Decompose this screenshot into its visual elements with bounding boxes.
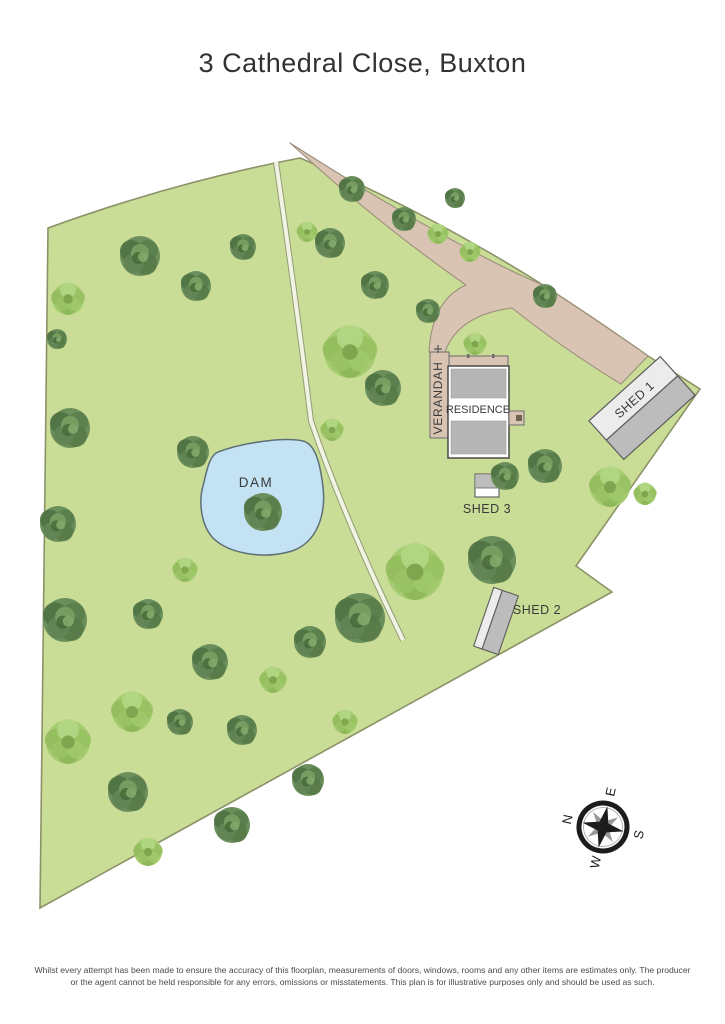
shed-2-label: SHED 2 (513, 603, 561, 617)
tree (633, 482, 656, 505)
tree (244, 493, 282, 531)
tree (227, 715, 257, 745)
tree (468, 536, 516, 584)
tree (294, 626, 326, 658)
compass-letter-s: S (630, 828, 647, 840)
tree (50, 408, 90, 448)
tree (528, 449, 562, 483)
tree (315, 228, 345, 258)
tree (214, 807, 250, 843)
tree (43, 598, 87, 642)
site-plan-page: 3 Cathedral Close, Buxton SHED 1 SHED 2 (0, 0, 725, 1024)
compass-letter-w: W (587, 854, 604, 870)
site-plan-svg: SHED 1 SHED 2 SHED 3 (0, 0, 725, 1024)
disclaimer-text: Whilst every attempt has been made to en… (30, 964, 695, 988)
tree (177, 436, 209, 468)
tree (120, 236, 160, 276)
compass-rose: N E S W (551, 778, 654, 877)
tree (491, 462, 519, 490)
verandah-label: VERANDAH (431, 361, 445, 434)
tree (47, 329, 67, 349)
compass-letter-e: E (602, 786, 619, 798)
residence-label: RESIDENCE (446, 404, 510, 416)
tree (230, 234, 256, 260)
tree (445, 188, 465, 208)
tree (192, 644, 228, 680)
tree (133, 599, 163, 629)
residence-roof-lower (451, 421, 506, 454)
tree (40, 506, 76, 542)
tree (533, 284, 557, 308)
compass-letter-n: N (559, 813, 576, 825)
tree (416, 299, 440, 323)
tree (292, 764, 324, 796)
tree (108, 772, 148, 812)
tree (167, 709, 193, 735)
tree (335, 593, 385, 643)
shed-3-label: SHED 3 (463, 502, 511, 516)
tree (392, 207, 416, 231)
dam-label: DAM (239, 475, 274, 490)
tree (365, 370, 401, 406)
tree (181, 271, 211, 301)
tree (361, 271, 389, 299)
residence-roof-upper (451, 369, 506, 398)
residence-top-eave (449, 356, 508, 366)
tree (339, 176, 365, 202)
